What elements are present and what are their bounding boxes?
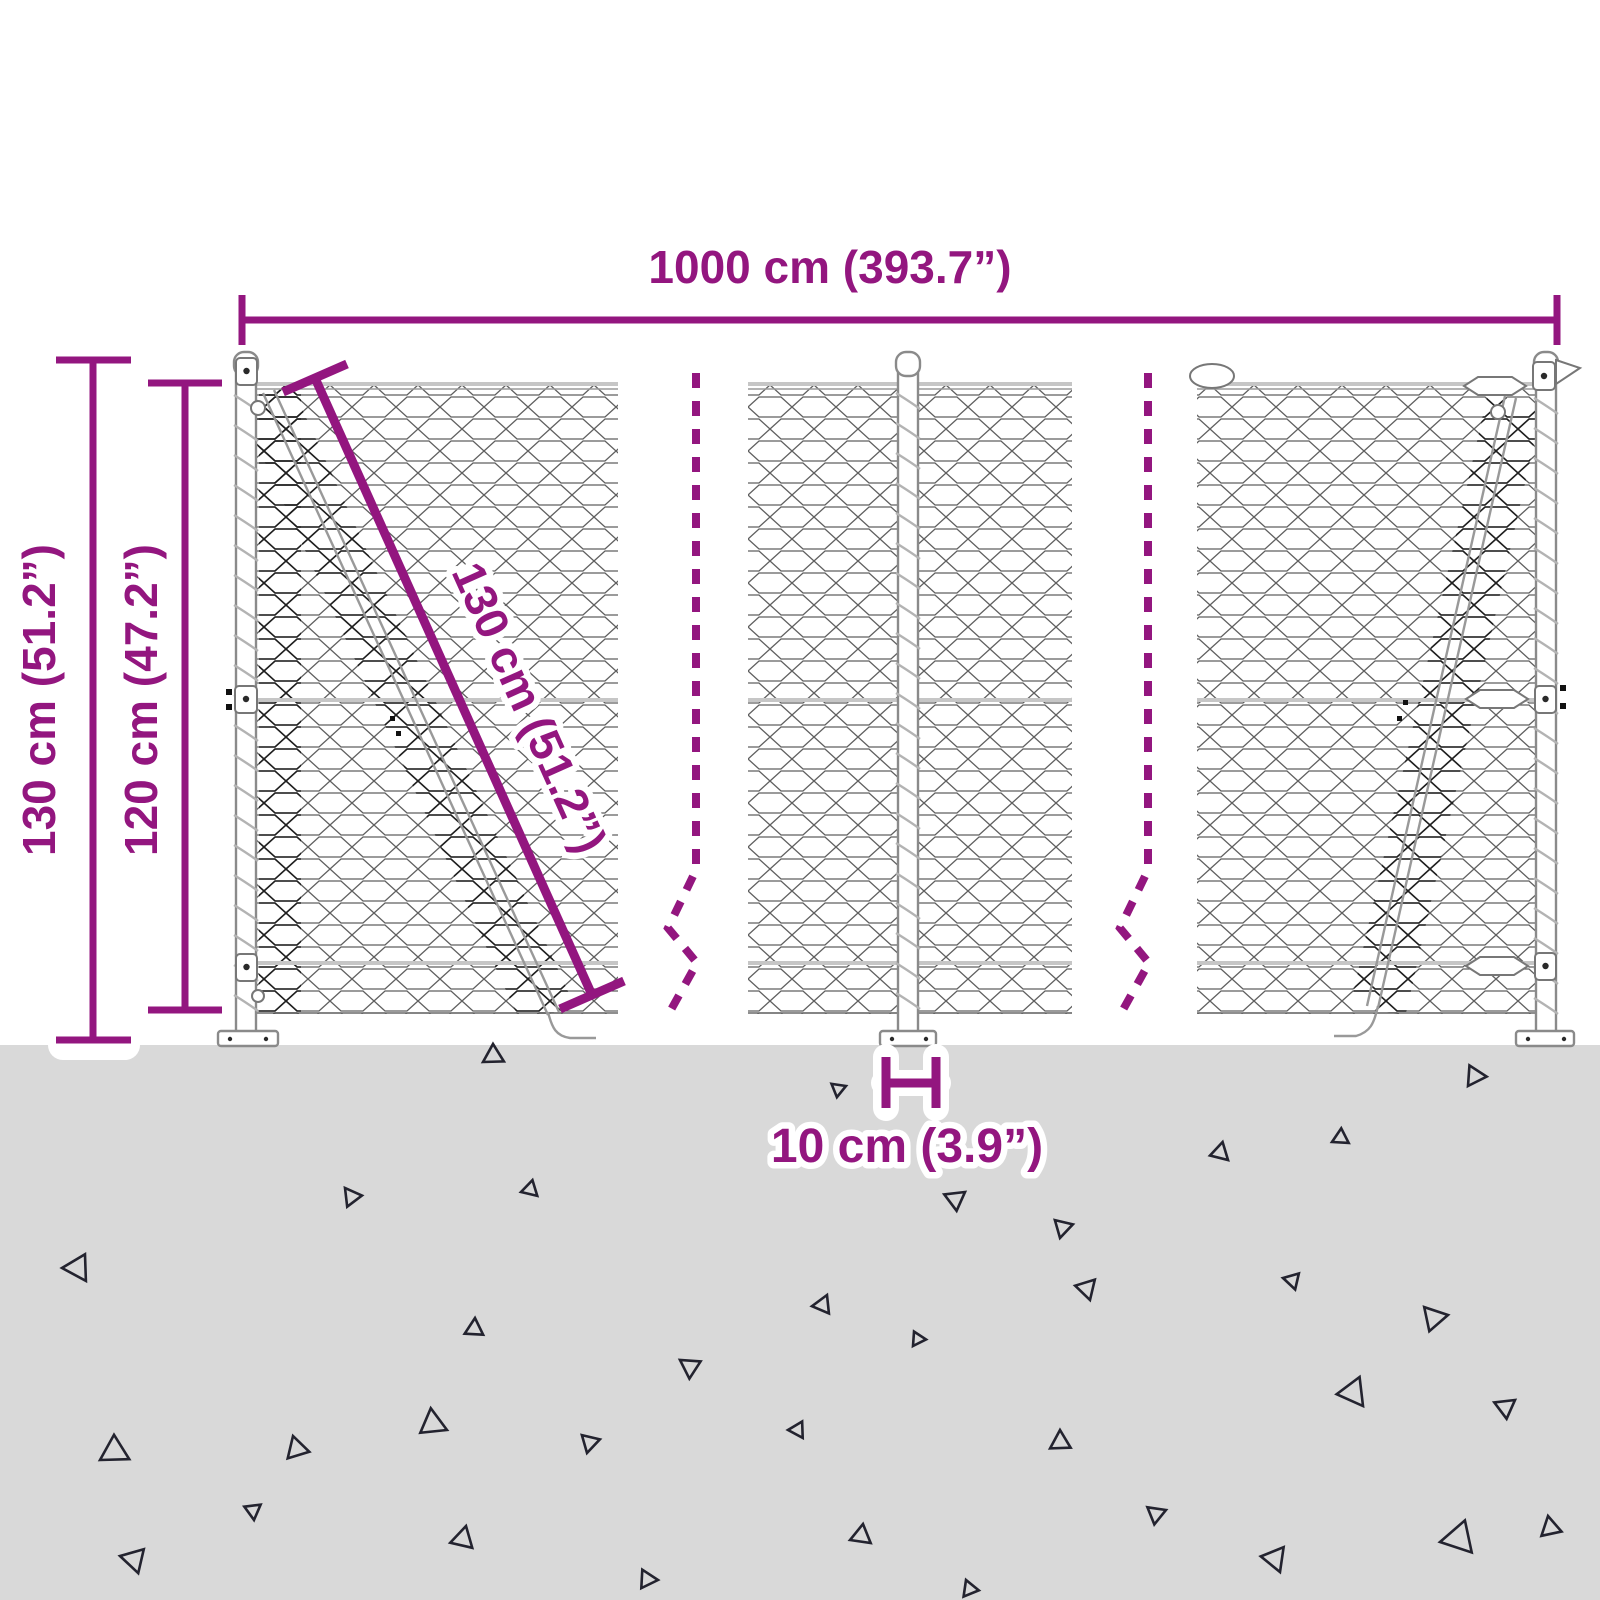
total-height-label: 130 cm (51.2”) bbox=[13, 544, 65, 856]
fence-dimension-diagram: 1000 cm (393.7”) 130 cm (51.2”) 120 cm (… bbox=[0, 0, 1600, 1600]
diagram-canvas: 1000 cm (393.7”) 130 cm (51.2”) 120 cm (… bbox=[0, 0, 1600, 1600]
total-width-label: 1000 cm (393.7”) bbox=[648, 241, 1011, 293]
post-spacing-label: 10 cm (3.9”) bbox=[771, 1120, 1043, 1173]
fence-illustration bbox=[218, 352, 1580, 1046]
width-dimension-line bbox=[242, 295, 1557, 345]
break-line-right bbox=[1119, 373, 1149, 1017]
mesh-height-label: 120 cm (47.2”) bbox=[115, 544, 167, 856]
break-line-left bbox=[667, 373, 697, 1017]
